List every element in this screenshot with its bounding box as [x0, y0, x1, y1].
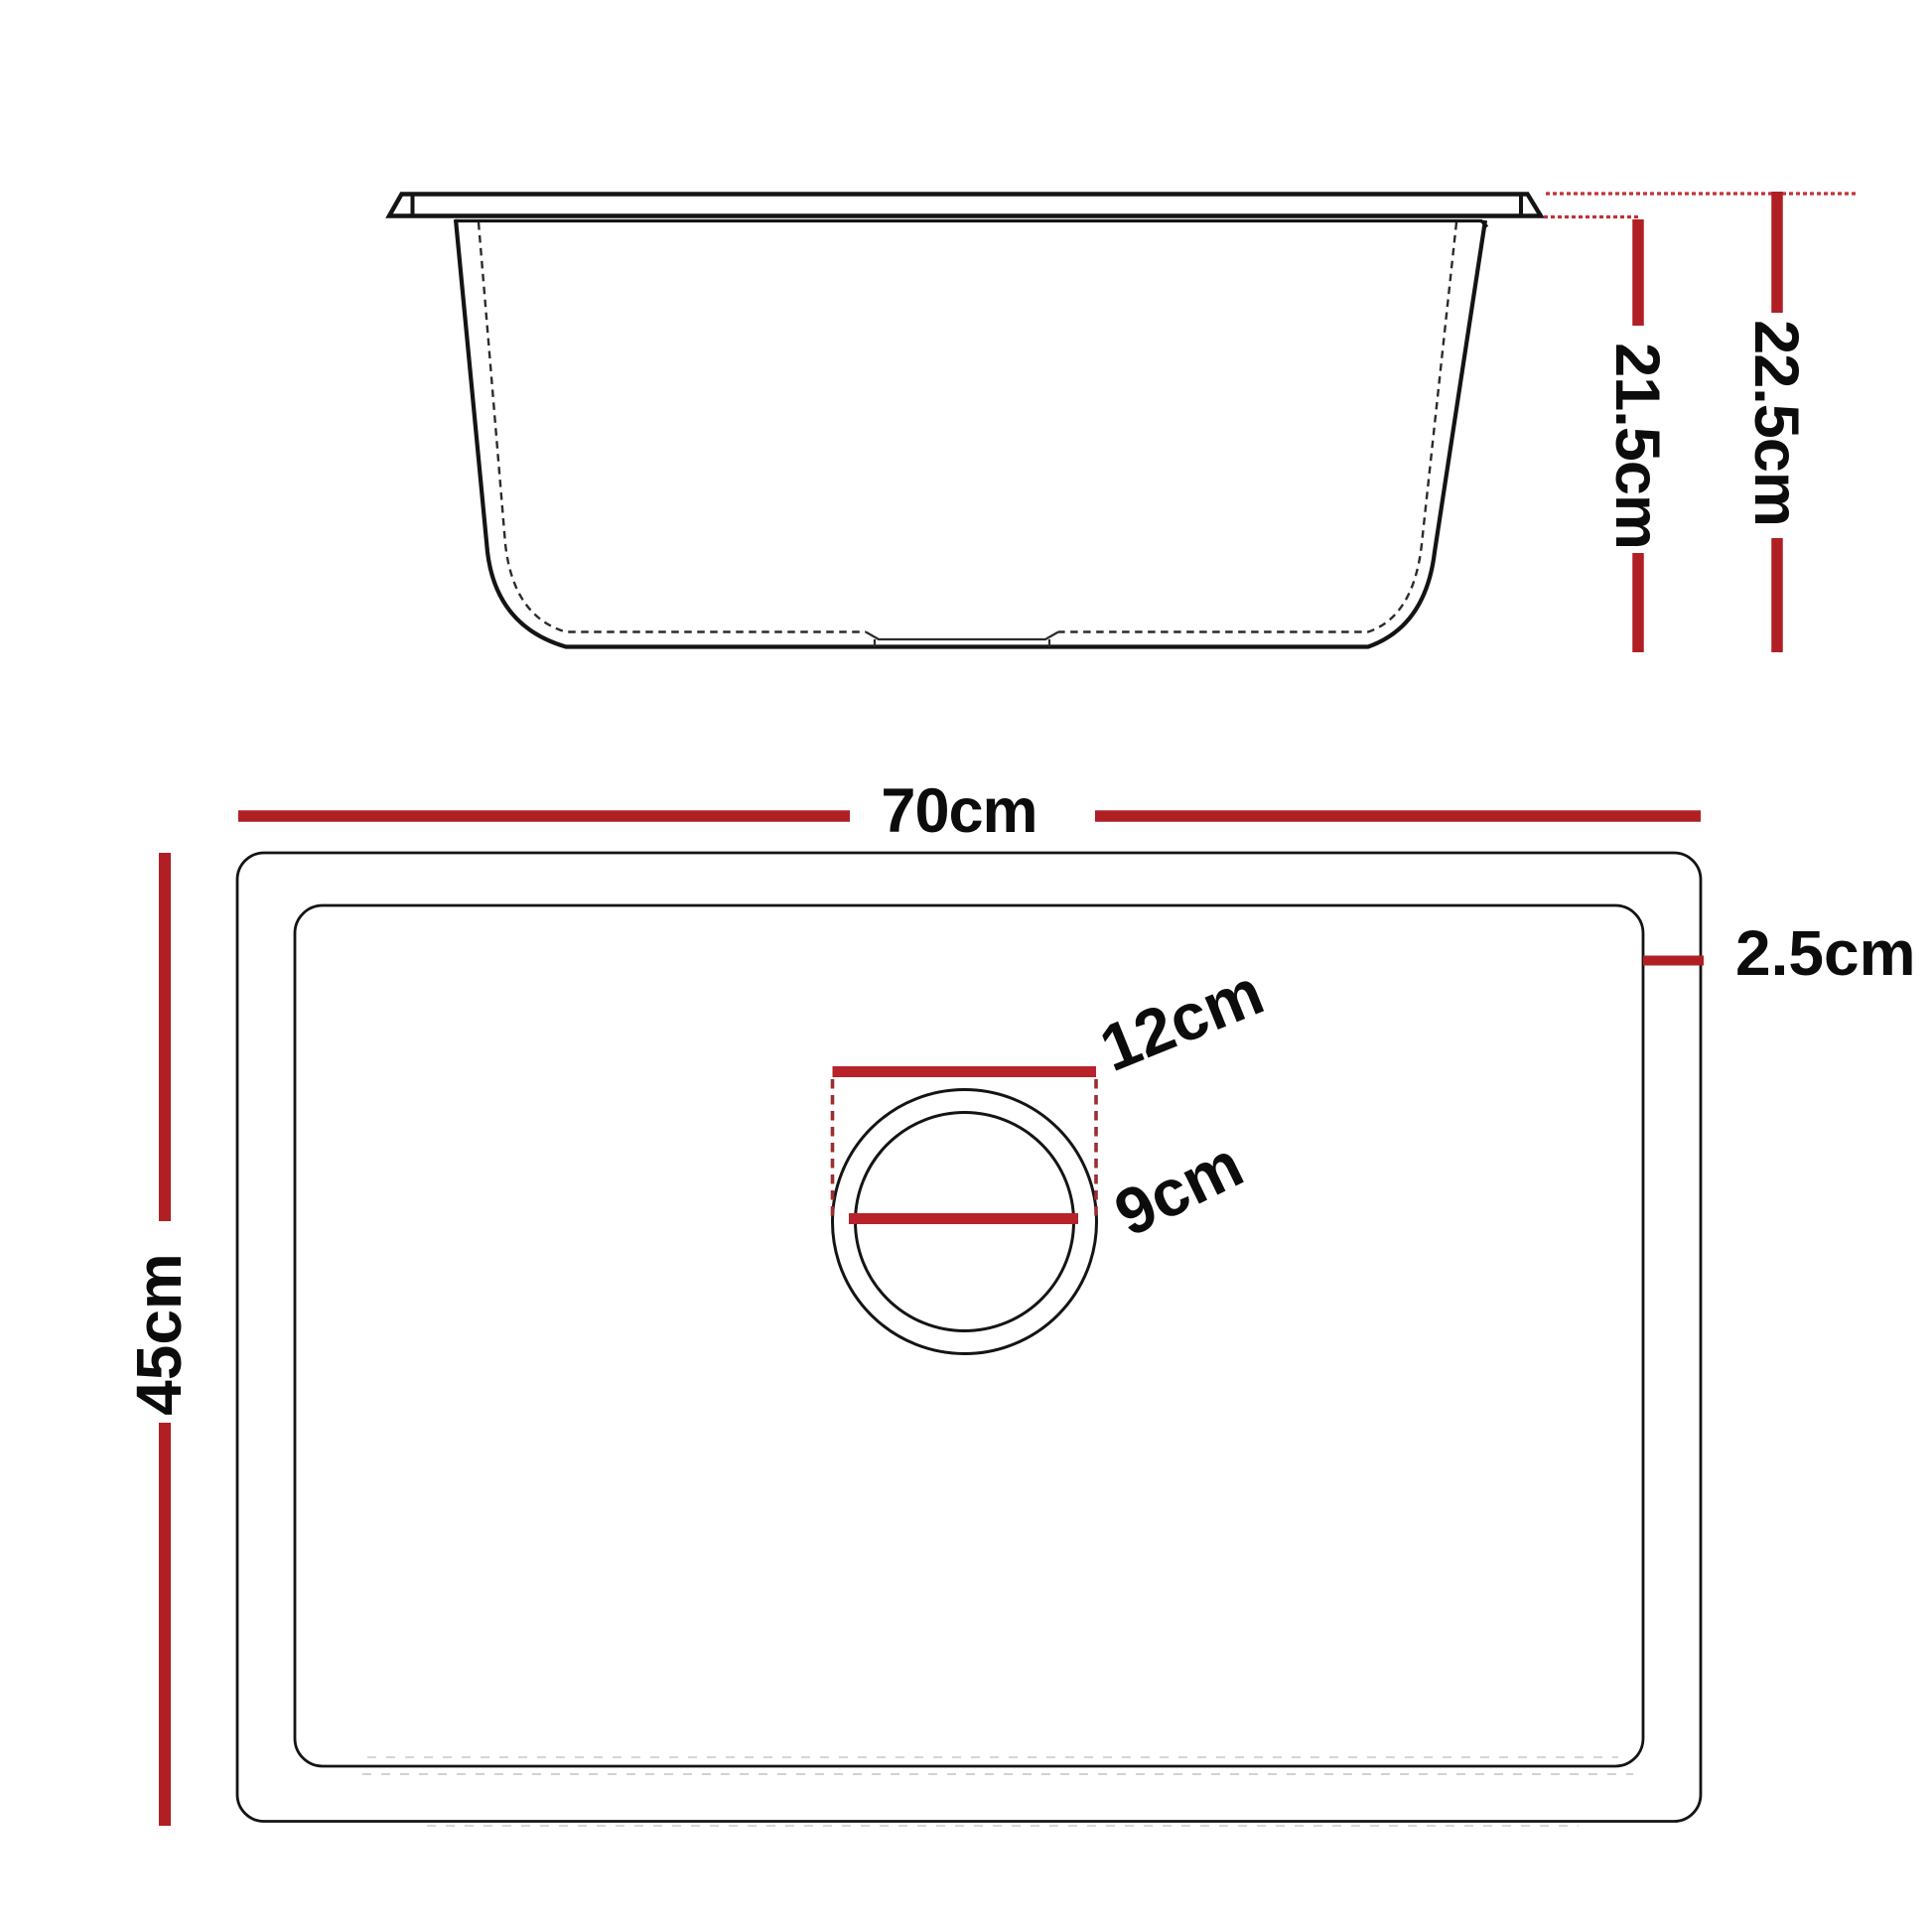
- svg-text:21.5cm: 21.5cm: [1602, 343, 1672, 549]
- svg-text:45cm: 45cm: [123, 1253, 195, 1416]
- svg-text:70cm: 70cm: [881, 776, 1036, 846]
- svg-text:2.5cm: 2.5cm: [1735, 917, 1915, 989]
- svg-text:22.5cm: 22.5cm: [1741, 320, 1811, 526]
